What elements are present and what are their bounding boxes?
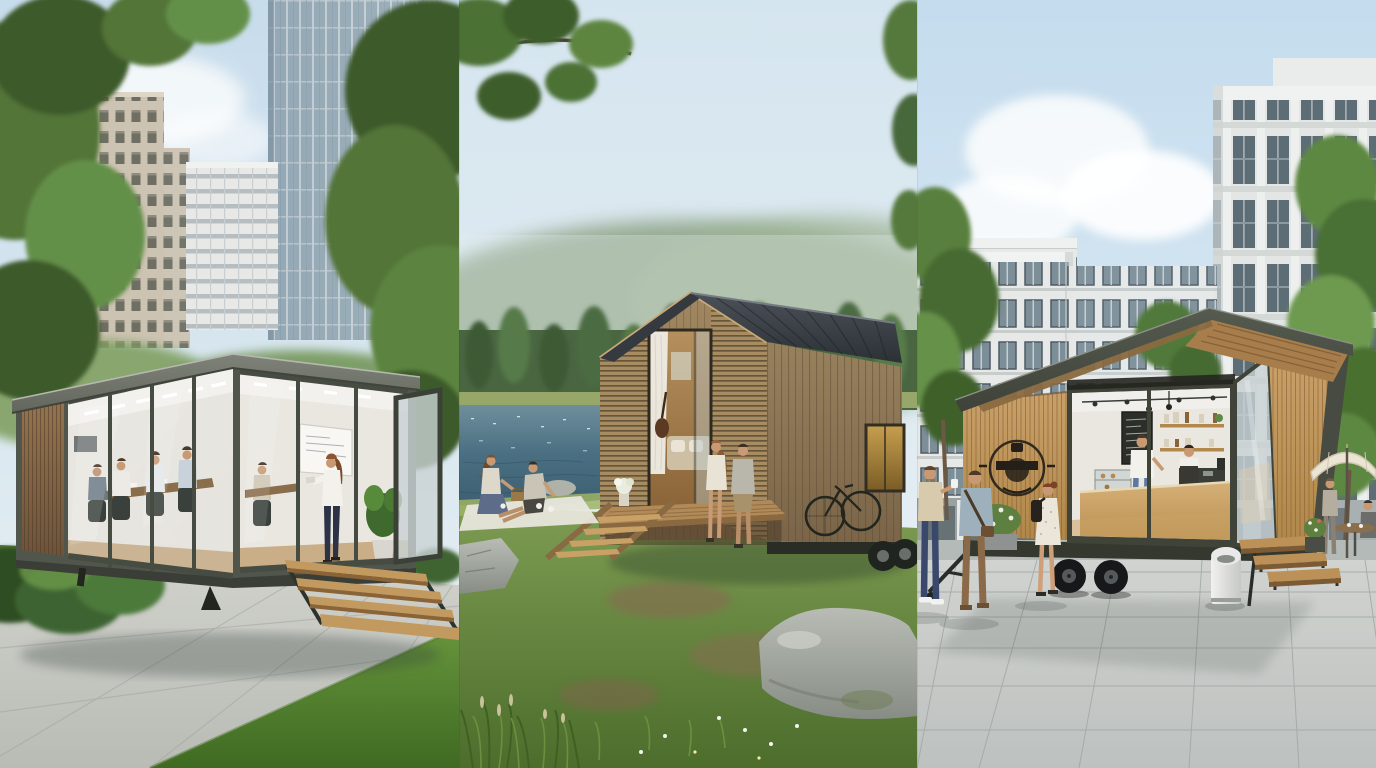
cabin-doorway	[649, 330, 711, 515]
pod-front-interior	[240, 372, 408, 570]
grinder	[1217, 458, 1225, 470]
panel-coffee-kiosk	[917, 0, 1376, 768]
panel-divider	[917, 0, 918, 768]
triptych-collage	[0, 0, 1376, 768]
flower-planter	[1304, 518, 1326, 552]
open-pivot-door	[396, 390, 440, 562]
panel-office-pod	[0, 0, 459, 768]
panel-lakeside-cabin	[459, 0, 917, 768]
far-window	[671, 352, 691, 380]
panel-divider	[459, 0, 460, 768]
pod-shadow	[20, 633, 440, 677]
white-apartment-block	[186, 162, 278, 330]
